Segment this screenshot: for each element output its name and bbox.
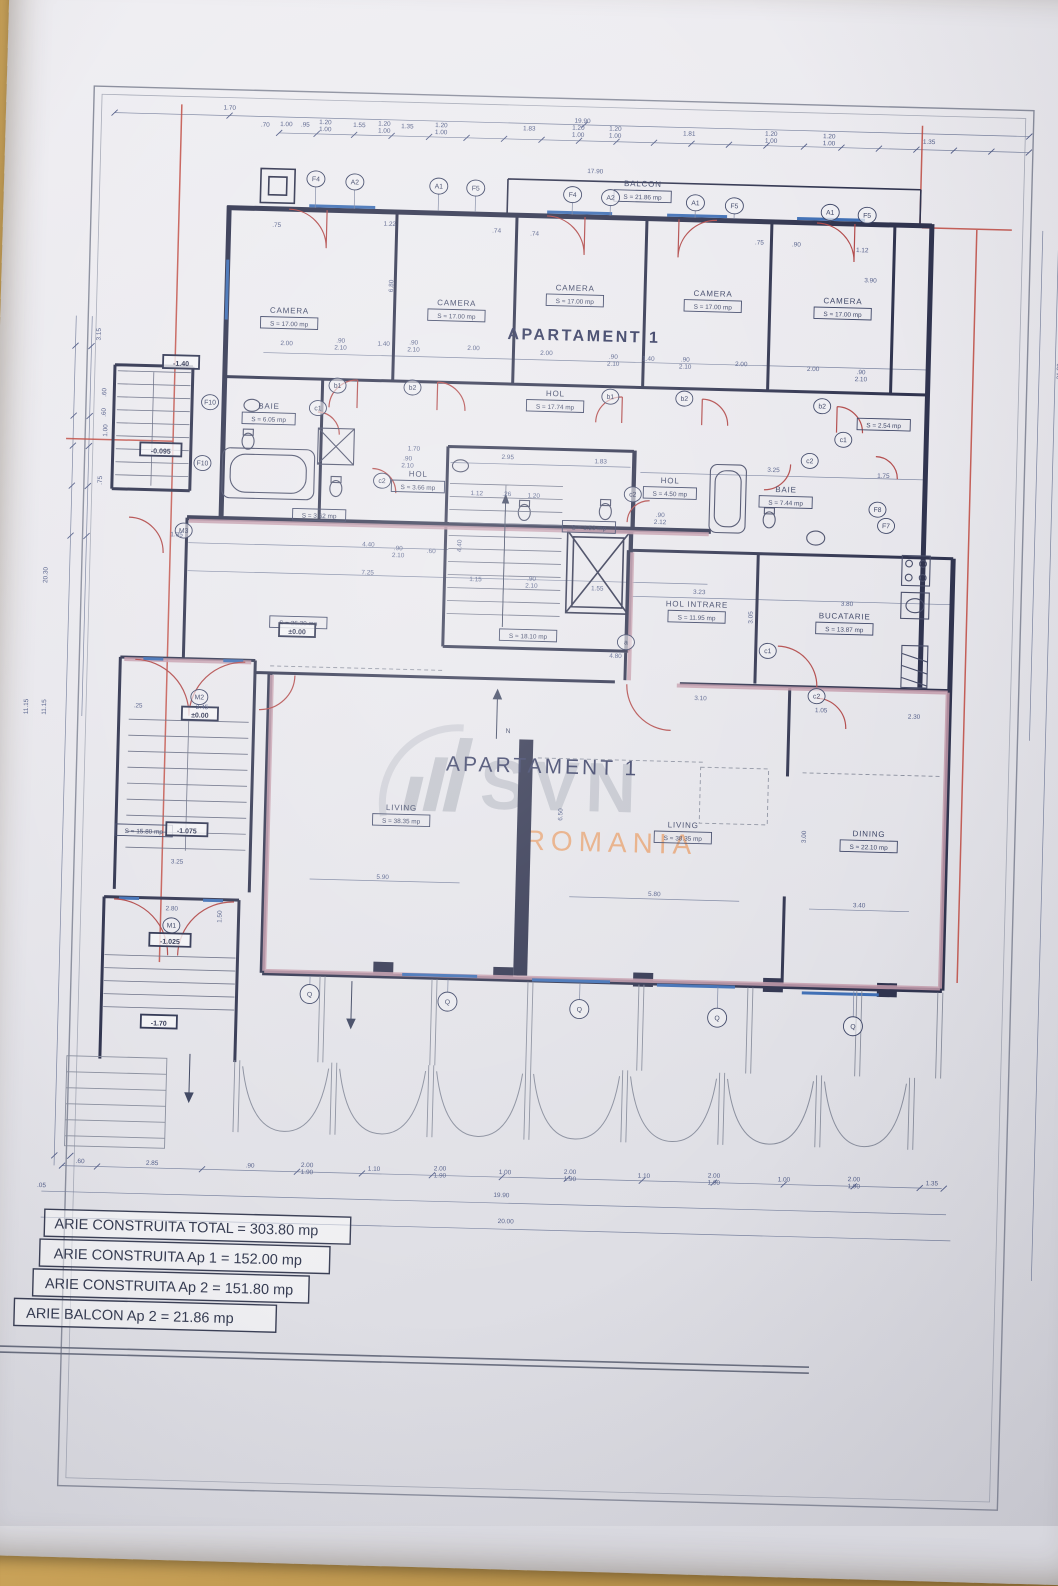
dimension-text: 1.70 <box>223 104 236 111</box>
grid-bubble-text: A1 <box>435 183 444 190</box>
tick-marks <box>51 109 1032 1194</box>
dimension-text: 1.00 <box>280 121 293 128</box>
grid-bubble-text: A2 <box>351 179 360 186</box>
dimension-text: 3.00 <box>801 830 808 843</box>
grid-bubble-text: F5 <box>472 185 480 192</box>
dimension-text: 1.35 <box>923 139 936 146</box>
watermark-region-text: ROMANIA <box>524 825 697 861</box>
grid-bubble: F5 <box>466 180 485 212</box>
dimension-text: 2.12 <box>654 519 667 526</box>
dimension-text: 1.55 <box>353 122 366 129</box>
room-area-text: S = 6.05 mp <box>251 416 286 424</box>
dimension-text: 3.90 <box>864 277 877 284</box>
dimension-text: 1.90 <box>301 1169 314 1176</box>
dimension-text: .75 <box>97 475 104 485</box>
dimension-text: 3.23 <box>693 589 706 596</box>
q-bubble-text: Q <box>577 1007 582 1014</box>
room-area-text: S = 17.74 mp <box>536 404 575 412</box>
dimension-text: 4.40 <box>362 541 375 548</box>
dimension-text: 1.83 <box>523 125 536 132</box>
dimension-text: .74 <box>530 231 540 238</box>
grid-bubble: F4 <box>306 171 325 208</box>
dimension-text: 1.00 <box>319 126 332 133</box>
stove <box>902 555 931 586</box>
dimension-text: 3.25 <box>767 467 780 474</box>
room-area-text: S = 17.00 mp <box>556 298 595 306</box>
q-bubble: Q <box>300 976 320 1004</box>
dimension-text: 1.83 <box>594 458 607 465</box>
reference-bubble: a <box>617 634 634 649</box>
room-name-text: BUCATARIE <box>819 611 871 621</box>
reference-bubble: b1 <box>329 378 346 393</box>
arcade-arch-curves <box>241 1066 906 1147</box>
reference-bubble: c2 <box>808 688 825 703</box>
reference-bubble-text: F10 <box>204 399 216 406</box>
grid-bubble-text: F5 <box>863 213 871 220</box>
legend-box-4: ARIE BALCON Ap 2 = 21.86 mp <box>14 1298 277 1332</box>
room-name-text: HOL <box>661 476 680 485</box>
dimension-text: 2.10 <box>334 344 347 351</box>
dimension-text: .05 <box>37 1182 47 1189</box>
dimension-text: 3.05 <box>747 611 754 624</box>
room-area-text: S = 15.80 mp <box>125 828 164 836</box>
elevation-box: -0.095 <box>140 442 182 456</box>
dimension-text: 11.15 <box>23 698 30 714</box>
room-area-text: S = 17.00 mp <box>823 311 862 319</box>
room-label: HOL INTRARES = 11.95 mp <box>665 599 728 623</box>
dimension-text: .75 <box>272 222 282 229</box>
stair-treads-m1 <box>103 955 235 1010</box>
arcade-piers <box>233 974 943 1150</box>
room-area-text: S = 1.53 mp <box>571 525 606 533</box>
room-label: S = 15.80 mp <box>115 824 172 837</box>
reference-bubble: c1 <box>835 432 852 447</box>
fixtures <box>217 399 934 688</box>
dimension-text: 1.00 <box>609 133 622 140</box>
reference-bubble-text: c2 <box>629 492 637 499</box>
grid-bubble-text: F5 <box>730 203 738 210</box>
dimension-text: 1.00 <box>572 132 585 139</box>
q-bubble-text: Q <box>307 992 312 999</box>
dimension-text: 7.25 <box>361 569 374 576</box>
reference-bubble: M1 <box>163 918 180 933</box>
room-label: BUCATARIES = 13.87 mp <box>816 611 874 635</box>
elevation-box: -1.075 <box>166 822 208 836</box>
reference-bubble-text: b2 <box>680 396 688 403</box>
room-name-text: BAIE <box>775 485 797 495</box>
kitchen-appliances <box>899 555 930 688</box>
dimension-text: 6.80 <box>388 279 395 292</box>
dimension-text: .74 <box>492 228 502 235</box>
room-area-text: S = 4.50 mp <box>652 491 687 499</box>
dimension-text: .75 <box>755 239 765 246</box>
room-name-text: CAMERA <box>270 306 309 316</box>
dimension-text: 1.55 <box>591 585 604 592</box>
dimension-text: 1.35 <box>926 1180 939 1187</box>
room-name-text: CAMERA <box>556 283 595 293</box>
arcade-arches <box>233 665 951 1150</box>
room-area-text: S = 21.86 mp <box>623 194 662 202</box>
grid-bubble: F5 <box>725 198 744 219</box>
dimension-text: 3.25 <box>171 858 184 865</box>
dimension-text: 6.50 <box>557 808 564 821</box>
room-label: HOLS = 4.50 mp <box>643 476 697 500</box>
dimension-text: 1.35 <box>401 123 414 130</box>
reference-bubble-text: b2 <box>818 403 826 410</box>
room-name-text: CAMERA <box>823 296 862 306</box>
room-label: CAMERAS = 17.00 mp <box>546 283 604 307</box>
elevation-text: -1.075 <box>177 828 197 836</box>
reference-bubble: F8 <box>869 502 886 517</box>
dimension-text: 1.20 <box>527 493 540 500</box>
dimension-text: 20.00 <box>498 1218 515 1225</box>
dimension-text: 17.90 <box>587 168 604 175</box>
dimension-text: 5.90 <box>376 874 389 881</box>
grid-bubble: F5 <box>858 207 876 223</box>
dimension-text: 2.10 <box>607 361 620 368</box>
dimension-text: 1.00 <box>378 128 391 135</box>
room-label: S = 2.54 mp <box>857 418 910 431</box>
dimension-text: 1.22 <box>383 221 396 228</box>
dimension-text: .26 <box>502 491 512 498</box>
dimension-text: 2.00 <box>540 350 553 357</box>
dimension-text: 2.00 <box>735 361 748 368</box>
dimension-text: 2.10 <box>401 462 414 469</box>
grid-bubble-text: F4 <box>312 176 320 183</box>
reference-bubble: c2 <box>373 473 390 488</box>
dimension-text: 2.00 <box>280 340 293 347</box>
room-area-text: S = 38.35 mp <box>382 818 421 826</box>
room-name-text: BALCON <box>624 179 662 189</box>
reference-bubble-text: b1 <box>606 394 614 401</box>
floor-plan-drawing: SVN ROMANIA <box>0 14 1058 1567</box>
reference-bubble-text: F8 <box>873 507 881 514</box>
dimension-text: 1.00 <box>778 1176 791 1183</box>
elevation-text: ±0.00 <box>288 629 306 636</box>
q-bubble: Q <box>570 983 590 1019</box>
room-area-text: S = 11.95 mp <box>678 614 716 622</box>
dimension-text: 2.00 <box>807 366 820 373</box>
dimension-text: 2.00 <box>467 345 480 352</box>
dimension-text: .70 <box>261 121 271 128</box>
dimension-text: 1.00 <box>435 129 448 136</box>
room-area-text: S = 17.00 mp <box>437 313 476 321</box>
q-bubble: Q <box>843 990 863 1036</box>
dimension-text: .60 <box>76 1158 86 1165</box>
dimension-text: 2.10 <box>392 552 405 559</box>
dimension-text: 1.05 <box>815 707 828 714</box>
room-label: CAMERAS = 17.00 mp <box>428 298 486 322</box>
room-name-text: LIVING <box>668 820 699 830</box>
legend-box-2: ARIE CONSTRUITA Ap 1 = 152.00 mp <box>39 1239 330 1274</box>
dimension-text: 2.10 <box>679 363 692 370</box>
reference-bubble-text: c2 <box>806 458 814 465</box>
room-area-text: S = 13.87 mp <box>825 626 864 634</box>
room-label: BAIES = 6.05 mp <box>242 401 296 425</box>
dimension-text: 1.40 <box>642 356 655 363</box>
dimension-text: 1.00 <box>102 424 109 437</box>
dimension-text: 2.45 <box>196 704 209 711</box>
room-area-text: S = 17.00 mp <box>694 304 733 312</box>
dimension-text: 3.10 <box>694 695 707 702</box>
dimension-text: 1.12 <box>470 490 483 497</box>
dimension-text: 1.00 <box>765 138 778 145</box>
room-label: CAMERAS = 17.00 mp <box>684 289 742 313</box>
dimension-text: 1.70 <box>408 445 421 452</box>
reference-bubble-text: b2 <box>409 385 417 392</box>
reference-bubble-text: c1 <box>764 648 772 655</box>
dimension-text: 4.80 <box>609 653 622 660</box>
room-label: BAIES = 7.44 mp <box>759 485 813 509</box>
grid-bubble: A1 <box>429 178 448 211</box>
title-apartament-upper: APARTAMENT 1 <box>507 326 660 347</box>
dimension-text: 2.30 <box>908 714 921 721</box>
reference-bubble: F10 <box>194 455 211 470</box>
elevation-text: -1.70 <box>151 1020 167 1027</box>
dimension-text: .90 <box>246 1162 256 1169</box>
dimension-text: 1.90 <box>434 1172 447 1179</box>
photo-background: { "titles": { "upper": "APARTAMENT 1", "… <box>0 0 1058 1526</box>
elevation-text: -1.40 <box>173 361 189 368</box>
dimension-text: 1.35 <box>170 531 183 538</box>
grid-bubble: F4 <box>563 186 582 214</box>
room-label: HOLS = 3.66 mp <box>391 469 445 493</box>
dimension-text: 19.90 <box>493 1192 510 1199</box>
elevation-box: -1.70 <box>141 1015 177 1029</box>
reference-bubbles: b1b2b1b2b2c1c2c1c2c2F8F7c1c2aF10F10M3M2M… <box>163 374 898 952</box>
kitchen-sink <box>901 592 930 619</box>
bathtub-left <box>222 448 315 500</box>
reference-bubble: c1 <box>309 400 326 415</box>
room-area-text: S = 17.00 mp <box>270 321 309 329</box>
exterior-stair <box>65 1056 167 1149</box>
room-area-text: S = 18.10 mp <box>509 633 548 641</box>
compass-label: N <box>505 728 510 735</box>
q-bubble-text: Q <box>850 1024 855 1031</box>
dimension-text: 5.80 <box>648 891 661 898</box>
grid-bubble-text: F4 <box>569 192 577 199</box>
dimension-text: 3.80 <box>841 601 854 608</box>
dimension-text: 1.40 <box>377 341 390 348</box>
reference-bubble-text: b1 <box>334 383 342 390</box>
q-bubble: Q <box>707 986 727 1027</box>
room-area-text: S = 22.10 mp <box>849 844 888 852</box>
reference-bubble: c1 <box>759 643 776 658</box>
room-name-text: HOL INTRARE <box>666 599 729 610</box>
room-name-text: CAMERA <box>437 298 476 308</box>
stair-treads-main <box>446 484 563 629</box>
reference-bubble-text: F10 <box>196 460 208 467</box>
dimension-text: 1.90 <box>564 1176 577 1183</box>
dimension-text: 1.00 <box>499 1169 512 1176</box>
reference-bubble: M2 <box>191 689 208 704</box>
room-area-text: S = 38.35 mp <box>664 835 703 843</box>
direction-arrows <box>185 487 509 1110</box>
dimension-text: 1.75 <box>877 473 890 480</box>
grid-bubble-text: A2 <box>606 195 615 202</box>
room-label: S = 18.10 mp <box>499 629 556 642</box>
dimension-text: 3.40 <box>853 902 866 909</box>
room-area-text: S = 3.62 mp <box>302 512 337 520</box>
elevation-text: -1.025 <box>160 939 180 947</box>
room-label: CAMERAS = 17.00 mp <box>260 306 318 330</box>
reference-bubble: F7 <box>877 518 894 533</box>
dimension-text: .60 <box>101 387 108 397</box>
reference-bubble: F10 <box>201 394 218 409</box>
legend: ARIE CONSTRUITA TOTAL = 303.80 mp ARIE C… <box>0 1208 813 1373</box>
reference-bubble-text: c2 <box>813 693 821 700</box>
legend-box-3: ARIE CONSTRUITA Ap 2 = 151.80 mp <box>33 1269 310 1303</box>
room-name-text: BAIE <box>258 401 280 411</box>
dimension-text: .60 <box>101 407 108 417</box>
dimension-text: 1.10 <box>368 1166 381 1173</box>
dimension-text: 1.15 <box>469 576 482 583</box>
dimension-text: 2.10 <box>855 376 868 383</box>
dimension-ticks <box>51 109 1032 1194</box>
room-area-text: S = 2.54 mp <box>866 422 901 430</box>
dimension-text: 1.00 <box>823 140 836 147</box>
elevation-box: ±0.00 <box>279 623 315 637</box>
dimension-text: .95 <box>301 121 311 128</box>
stair-treads-top-left <box>115 371 191 487</box>
reference-bubble: c2 <box>801 453 818 468</box>
dimension-text: 2.10 <box>525 583 538 590</box>
grid-bubble: A2 <box>601 189 620 215</box>
grid-bubble-text: A1 <box>691 200 700 207</box>
reference-bubble: b1 <box>602 389 619 404</box>
grid-bubble: A2 <box>345 174 364 209</box>
elevation-text: -0.095 <box>151 448 171 456</box>
reference-bubble-text: c1 <box>840 437 848 444</box>
dimension-text: 20.30 <box>42 566 49 583</box>
dimension-text: 1.90 <box>707 1179 720 1186</box>
room-label: DININGS = 22.10 mp <box>840 829 898 853</box>
legend-underline <box>0 1346 809 1373</box>
room-name-text: CAMERA <box>693 289 732 299</box>
dimension-text: .90 <box>792 241 802 248</box>
dimension-text: 11.15 <box>41 699 48 715</box>
elevation-box: -1.40 <box>163 355 199 369</box>
room-area-text: S = 7.44 mp <box>768 500 803 508</box>
room-name-text: DINING <box>852 829 885 839</box>
elevation-box: -1.025 <box>149 933 191 947</box>
room-label: HOLS = 17.74 mp <box>526 388 584 412</box>
dimension-text: 2.80 <box>165 905 178 912</box>
q-bubble: Q <box>438 979 458 1011</box>
reference-bubble: b2 <box>404 380 421 395</box>
reference-bubble-text: F7 <box>882 523 890 530</box>
reference-bubble-text: c1 <box>314 405 322 412</box>
reference-bubble-text: c2 <box>378 478 386 485</box>
dimension-text: 2.10 <box>407 346 420 353</box>
room-label: CAMERAS = 17.00 mp <box>814 296 872 320</box>
dimension-text: 3.15 <box>96 328 103 341</box>
dimension-text: 1.12 <box>856 247 869 254</box>
room-name-text: HOL <box>409 469 428 478</box>
room-name-text: HOL <box>546 389 565 398</box>
reference-bubble-text: M1 <box>167 923 177 930</box>
dimension-text: 4.40 <box>456 539 463 552</box>
dimension-text: 1.90 <box>847 1183 860 1190</box>
door-swings <box>113 205 904 974</box>
watermark: SVN ROMANIA <box>381 726 700 860</box>
reference-bubble-text: a <box>624 639 628 646</box>
windows <box>117 201 899 995</box>
elevation-text: ±0.00 <box>191 712 209 719</box>
dimension-text: 1.10 <box>638 1173 651 1180</box>
dimension-text: 1.50 <box>216 910 223 923</box>
dimension-text: .60 <box>427 548 437 555</box>
reference-bubble: b2 <box>676 391 693 406</box>
legend-box-1: ARIE CONSTRUITA TOTAL = 303.80 mp <box>44 1209 351 1244</box>
dimension-text: 1.81 <box>683 130 696 137</box>
dimension-text: 2.85 <box>146 1160 159 1167</box>
reference-bubble-text: M2 <box>195 694 205 701</box>
room-area-text: S = 3.66 mp <box>400 484 435 492</box>
title-apartament-lower: APARTAMENT 1 <box>446 753 640 781</box>
reference-bubble: c2 <box>624 487 641 502</box>
reference-bubble: b2 <box>813 399 830 414</box>
room-name-text: LIVING <box>386 803 417 813</box>
q-bubble-text: Q <box>714 1015 719 1022</box>
dimension-text: 2.95 <box>501 454 514 461</box>
q-bubble-text: Q <box>445 999 450 1006</box>
grid-bubble-text: A1 <box>826 210 835 217</box>
dimension-text: .25 <box>134 702 144 709</box>
